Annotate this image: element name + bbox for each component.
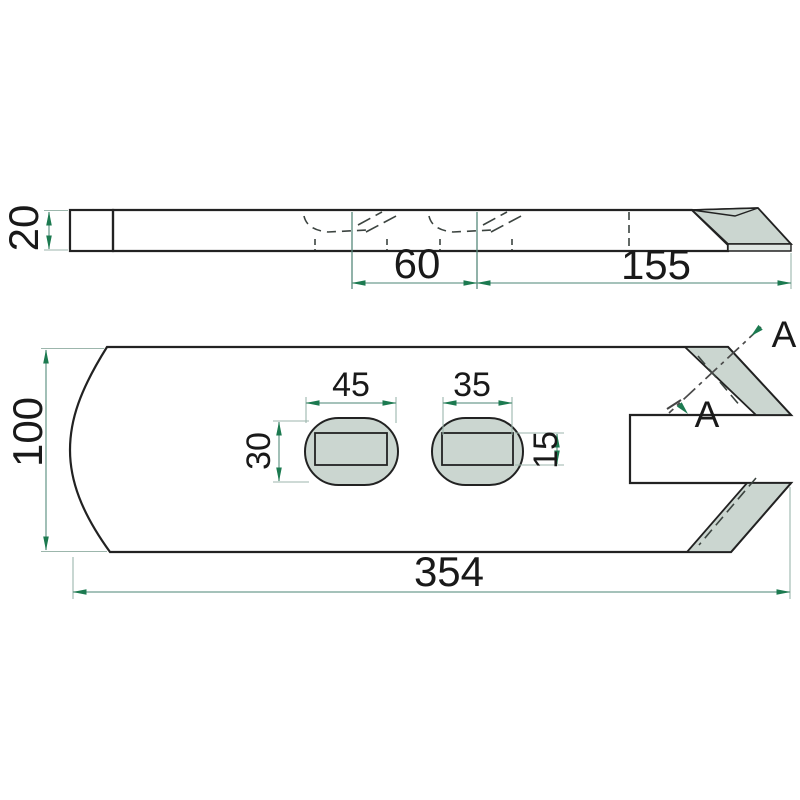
section-label-bottom: A bbox=[695, 394, 720, 435]
technical-drawing: 20 60 155 bbox=[0, 0, 800, 800]
section-label-top: A bbox=[772, 314, 797, 355]
dim-thickness: 20 bbox=[0, 205, 68, 252]
slot-left bbox=[305, 418, 398, 485]
side-profile-view: 20 60 155 bbox=[0, 205, 791, 289]
slot-right bbox=[432, 418, 523, 485]
side-tip-bottom-band bbox=[728, 244, 791, 251]
dim-slot-inner-height-label: 15 bbox=[527, 431, 565, 469]
dim-slot-outer-width-label: 45 bbox=[332, 366, 370, 404]
lower-prong-bevel bbox=[687, 483, 791, 552]
dim-slot-inner-width-label: 35 bbox=[453, 366, 491, 404]
dim-hole-spacing: 60 bbox=[352, 240, 477, 287]
side-left-segment bbox=[70, 210, 113, 251]
dim-slot-outer-height-label: 30 bbox=[240, 432, 278, 470]
dim-total-length-label: 354 bbox=[414, 548, 484, 595]
dim-tip-length-label: 155 bbox=[621, 241, 691, 288]
dim-slot-outer-width: 45 bbox=[306, 366, 396, 423]
dim-total-length: 354 bbox=[73, 487, 790, 599]
dim-thickness-label: 20 bbox=[0, 205, 47, 252]
hidden-slot-profile-right bbox=[429, 212, 523, 232]
section-arrow-top bbox=[751, 325, 763, 336]
dim-hole-spacing-label: 60 bbox=[394, 240, 441, 287]
top-plan-view: A A 100 45 35 30 bbox=[4, 314, 797, 599]
hidden-slot-profile-left bbox=[304, 212, 398, 232]
blade-body bbox=[70, 347, 791, 552]
dim-slot-outer-height: 30 bbox=[240, 421, 309, 482]
drawing-canvas: 20 60 155 bbox=[0, 0, 800, 800]
dim-blade-width-label: 100 bbox=[4, 397, 51, 467]
